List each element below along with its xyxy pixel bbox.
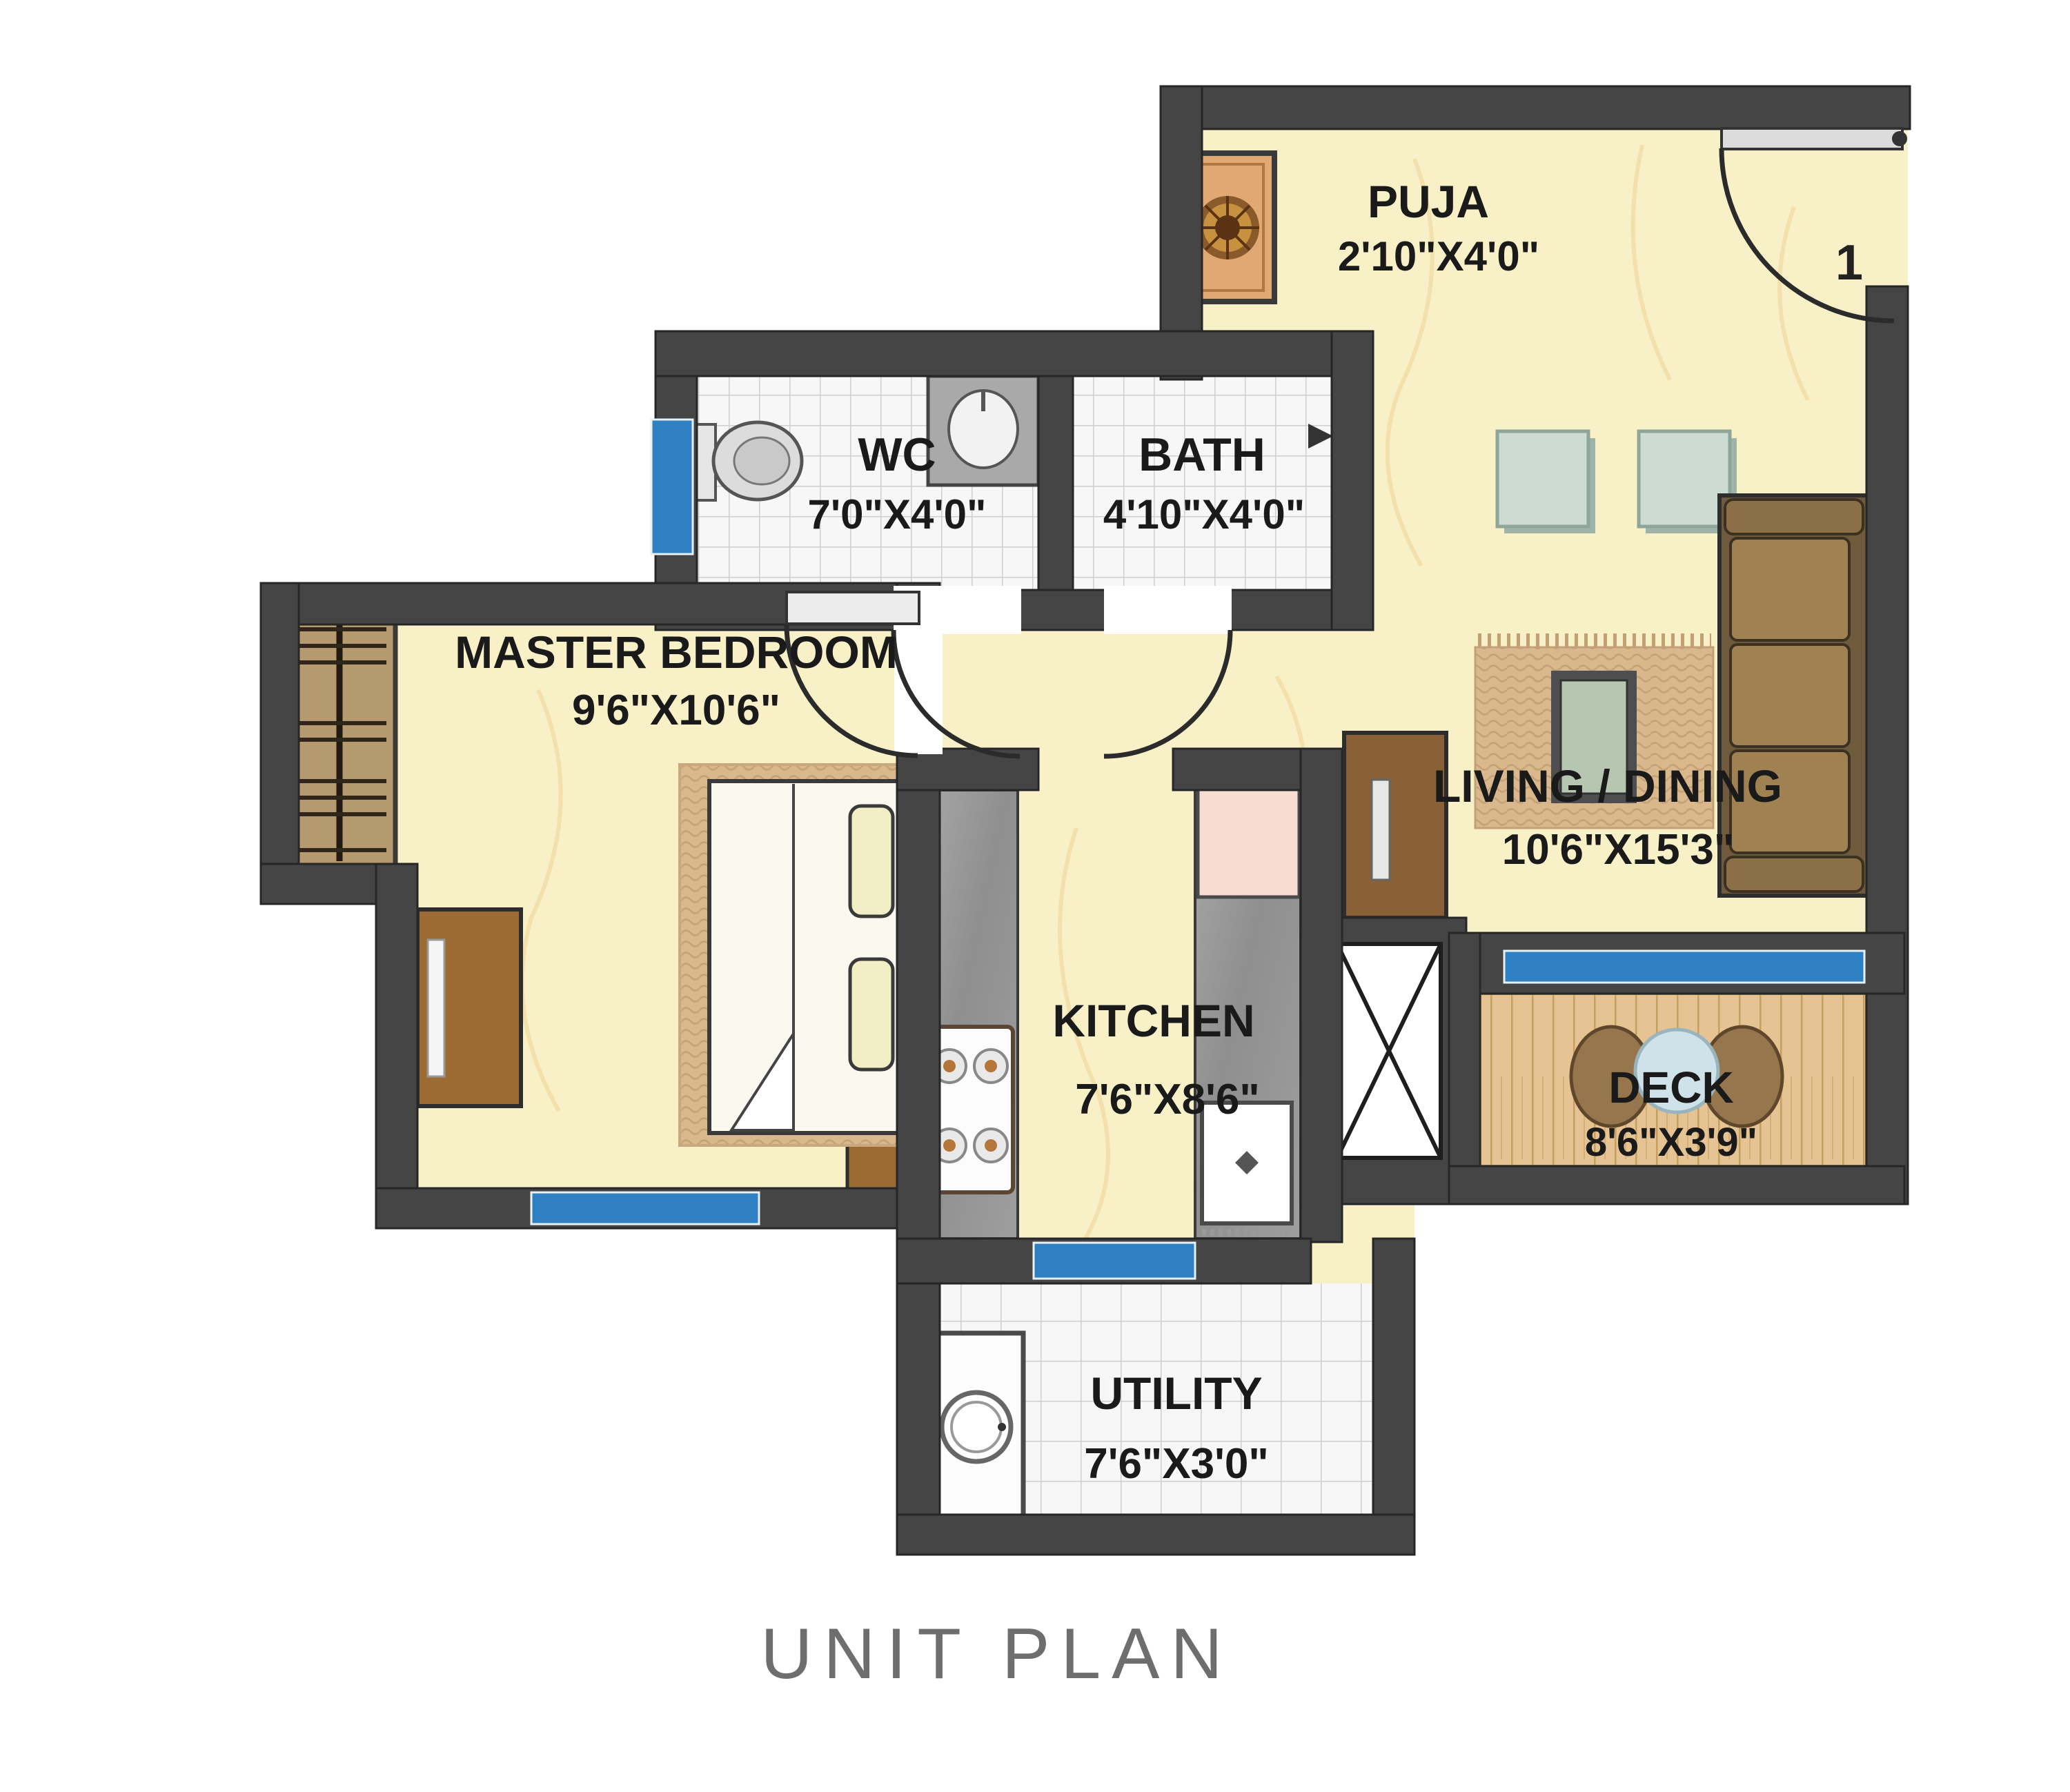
deck-dims: 8'6"X3'9" xyxy=(1585,1120,1757,1165)
kitchen-label: KITCHEN xyxy=(1052,995,1254,1046)
entry-door-number: 1 xyxy=(1835,235,1863,291)
bedroom-window xyxy=(531,1192,759,1224)
bedroom-door-leaf xyxy=(787,592,919,624)
washing-machine-icon xyxy=(930,1333,1023,1521)
bath-dims: 4'10"X4'0" xyxy=(1103,491,1305,538)
wardrobe-icon xyxy=(286,587,395,866)
deck-label: DECK xyxy=(1608,1063,1733,1112)
entry-door-hinge xyxy=(1892,131,1907,146)
living-dining-label: LIVING / DINING xyxy=(1433,760,1782,811)
bath-tile-floor xyxy=(1073,376,1332,590)
bedroom-door-opening xyxy=(894,628,943,754)
entry-door-leaf xyxy=(1722,128,1902,149)
wc-label: WC xyxy=(858,429,936,481)
toilet-icon xyxy=(687,422,802,500)
tv-unit-icon xyxy=(1344,733,1446,918)
wc-window xyxy=(651,420,693,554)
bath-door-opening xyxy=(1104,586,1232,634)
pouf-icon xyxy=(1497,431,1595,533)
living-dining-dims: 10'6"X15'3" xyxy=(1502,826,1735,874)
floor-plan-canvas: PUJA 2'10"X4'0" 1 WC 7'0"X4'0" BATH 4'10… xyxy=(0,0,2070,1792)
sofa-icon xyxy=(1719,495,1873,896)
bed-icon xyxy=(680,765,925,1145)
wc-dims: 7'0"X4'0" xyxy=(808,491,987,538)
plan-title: UNIT PLAN xyxy=(760,1614,1233,1694)
kitchen-dims: 7'6"X8'6" xyxy=(1075,1076,1260,1123)
master-bedroom-dims: 9'6"X10'6" xyxy=(572,687,780,734)
pillow-icon xyxy=(850,806,893,916)
bath-label: BATH xyxy=(1138,429,1265,481)
kitchen-window xyxy=(1034,1243,1195,1279)
dresser-icon xyxy=(417,909,521,1106)
puja-dims: 2'10"X4'0" xyxy=(1338,233,1539,279)
master-bedroom-label: MASTER BEDROOM xyxy=(455,627,898,678)
puja-label: PUJA xyxy=(1368,176,1489,227)
unit-plan-page: PUJA 2'10"X4'0" 1 WC 7'0"X4'0" BATH 4'10… xyxy=(0,0,2070,1792)
utility-label: UTILITY xyxy=(1090,1368,1262,1419)
living-deck-window xyxy=(1504,951,1864,983)
utility-dims: 7'6"X3'0" xyxy=(1084,1440,1269,1488)
washbasin-icon xyxy=(928,376,1038,485)
pillow-icon xyxy=(850,959,893,1070)
fridge-icon xyxy=(1198,781,1299,897)
